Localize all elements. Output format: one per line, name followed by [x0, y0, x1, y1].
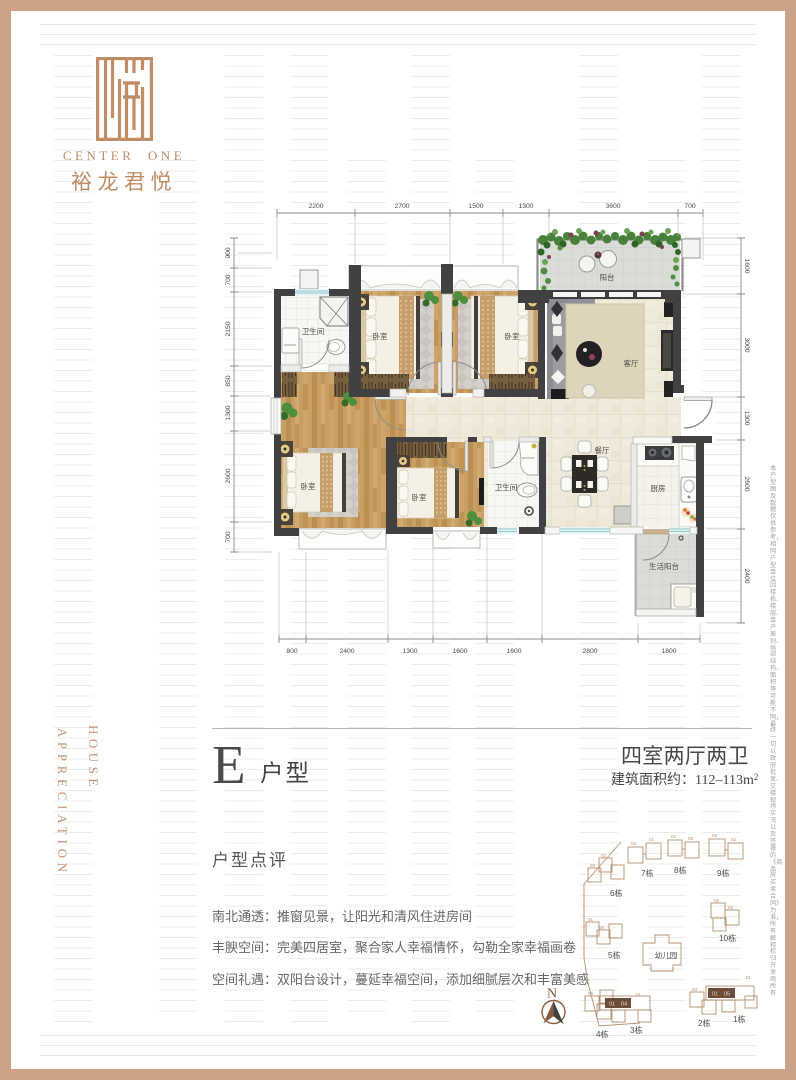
svg-text:2150: 2150 — [225, 321, 232, 336]
svg-text:卧室: 卧室 — [412, 492, 427, 502]
svg-text:1600: 1600 — [452, 648, 467, 655]
svg-text:04: 04 — [599, 925, 605, 930]
svg-text:卧室: 卧室 — [373, 331, 388, 341]
svg-text:2700: 2700 — [394, 203, 409, 210]
svg-text:厨房: 厨房 — [651, 483, 666, 493]
svg-text:05: 05 — [724, 992, 730, 998]
svg-text:7栋: 7栋 — [641, 868, 654, 878]
svg-text:01: 01 — [746, 975, 752, 980]
svg-text:卧室: 卧室 — [505, 331, 520, 341]
svg-text:5栋: 5栋 — [608, 950, 621, 960]
svg-text:02: 02 — [601, 853, 607, 858]
svg-text:01: 01 — [712, 992, 718, 998]
svg-text:1800: 1800 — [661, 648, 676, 655]
svg-text:05: 05 — [712, 833, 718, 838]
svg-text:卫生间: 卫生间 — [495, 482, 518, 492]
svg-text:01: 01 — [636, 992, 642, 997]
svg-text:04: 04 — [590, 863, 596, 868]
svg-text:1500: 1500 — [468, 203, 483, 210]
svg-text:1栋: 1栋 — [733, 1014, 746, 1024]
svg-text:9栋: 9栋 — [717, 868, 730, 878]
svg-text:01: 01 — [671, 834, 677, 839]
svg-text:N: N — [547, 987, 557, 1002]
svg-text:02: 02 — [728, 905, 734, 910]
svg-text:700: 700 — [684, 203, 696, 210]
svg-text:4栋: 4栋 — [596, 1029, 609, 1039]
svg-text:900: 900 — [225, 247, 232, 259]
svg-text:05: 05 — [714, 898, 720, 903]
svg-text:10栋: 10栋 — [719, 933, 736, 943]
svg-text:850: 850 — [225, 375, 232, 387]
svg-text:1600: 1600 — [743, 258, 750, 273]
svg-text:客厅: 客厅 — [624, 358, 639, 368]
svg-text:3栋: 3栋 — [630, 1025, 643, 1035]
svg-text:1300: 1300 — [402, 648, 417, 655]
svg-text:3000: 3000 — [743, 337, 750, 352]
svg-text:1300: 1300 — [743, 410, 750, 425]
svg-text:1600: 1600 — [506, 648, 521, 655]
svg-text:04: 04 — [692, 987, 698, 992]
svg-text:01: 01 — [649, 837, 655, 842]
svg-text:02: 02 — [731, 837, 737, 842]
svg-text:餐厅: 餐厅 — [595, 446, 610, 455]
svg-text:700: 700 — [225, 274, 232, 286]
svg-text:1300: 1300 — [518, 203, 533, 210]
svg-text:卫生间: 卫生间 — [302, 326, 325, 336]
svg-text:04: 04 — [621, 1002, 627, 1008]
svg-text:6栋: 6栋 — [610, 888, 623, 898]
svg-text:02: 02 — [688, 836, 694, 841]
svg-text:2800: 2800 — [582, 648, 597, 655]
svg-text:1300: 1300 — [225, 405, 232, 420]
svg-text:01: 01 — [588, 917, 594, 922]
svg-text:幼儿园: 幼儿园 — [655, 950, 678, 960]
svg-text:01: 01 — [609, 1002, 615, 1008]
svg-text:2600: 2600 — [743, 476, 750, 491]
svg-text:03: 03 — [631, 841, 637, 846]
svg-text:阳台: 阳台 — [600, 272, 615, 282]
svg-text:2400: 2400 — [743, 568, 750, 583]
svg-text:05: 05 — [588, 991, 594, 996]
svg-text:2200: 2200 — [308, 203, 323, 210]
svg-text:生活阳台: 生活阳台 — [649, 561, 679, 571]
svg-text:2400: 2400 — [339, 648, 354, 655]
svg-text:卧室: 卧室 — [301, 481, 316, 491]
svg-text:700: 700 — [225, 531, 232, 543]
svg-text:2栋: 2栋 — [698, 1018, 711, 1028]
svg-text:2600: 2600 — [225, 468, 232, 483]
svg-text:800: 800 — [286, 648, 298, 655]
svg-text:3600: 3600 — [605, 203, 620, 210]
svg-text:8栋: 8栋 — [674, 865, 687, 875]
